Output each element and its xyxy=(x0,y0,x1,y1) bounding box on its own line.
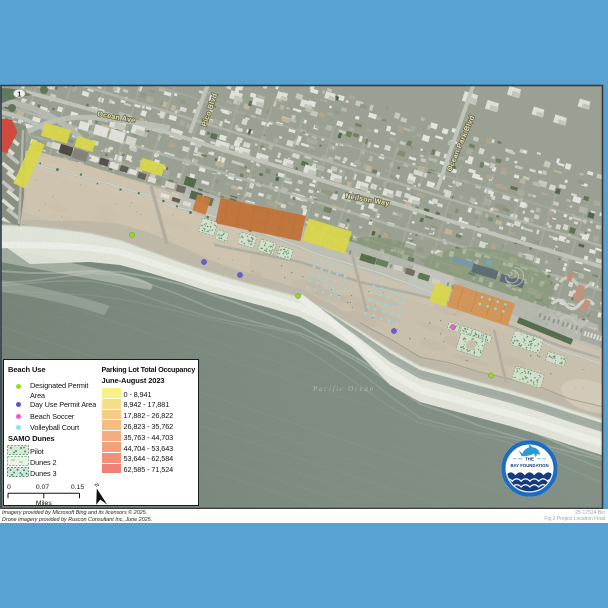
svg-text:0.07: 0.07 xyxy=(35,484,48,491)
svg-text:BAY FOUNDATION: BAY FOUNDATION xyxy=(510,463,548,468)
svg-text:THE: THE xyxy=(525,457,534,462)
svg-text:Miles: Miles xyxy=(35,500,51,507)
svg-text:0: 0 xyxy=(7,484,11,491)
svg-text:N: N xyxy=(94,482,101,489)
svg-text:0.15: 0.15 xyxy=(70,484,83,491)
